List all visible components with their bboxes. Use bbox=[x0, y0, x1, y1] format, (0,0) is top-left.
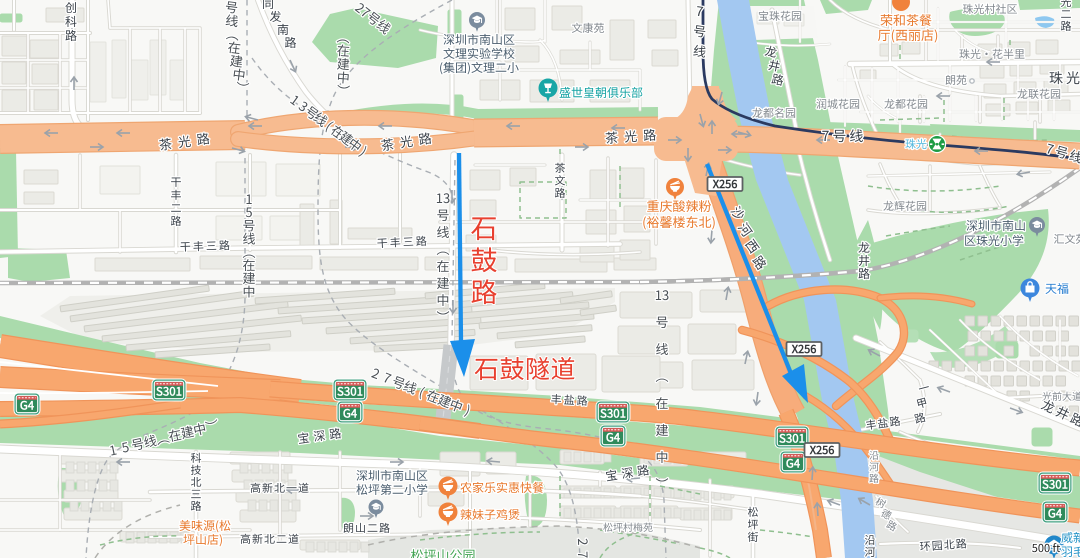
svg-text:河: 河 bbox=[865, 544, 876, 558]
svg-text:线: 线 bbox=[655, 339, 668, 358]
svg-text:环园北路: 环园北路 bbox=[919, 535, 968, 554]
svg-text:路: 路 bbox=[191, 498, 202, 514]
svg-text:G4: G4 bbox=[606, 430, 621, 446]
svg-text:珠光·花半里: 珠光·花半里 bbox=[959, 46, 1025, 62]
svg-text:辣妹子鸡煲: 辣妹子鸡煲 bbox=[460, 506, 520, 523]
svg-text:G4: G4 bbox=[20, 398, 35, 414]
svg-text:高新北二道: 高新北二道 bbox=[240, 531, 300, 547]
svg-text:龙联花园: 龙联花园 bbox=[1017, 86, 1061, 102]
svg-text:区珠光小学: 区珠光小学 bbox=[964, 232, 1024, 249]
svg-text:松坪村梅苑: 松坪村梅苑 bbox=[603, 519, 653, 534]
svg-text:G4: G4 bbox=[1048, 506, 1063, 522]
svg-text:路: 路 bbox=[1061, 18, 1072, 34]
svg-text:︶: ︶ bbox=[436, 307, 449, 326]
svg-text:号: 号 bbox=[692, 20, 708, 41]
svg-text:在: 在 bbox=[655, 393, 668, 412]
svg-text:︶: ︶ bbox=[336, 81, 350, 101]
svg-text:建: 建 bbox=[655, 420, 668, 439]
svg-text:中: 中 bbox=[655, 447, 668, 466]
svg-text:珠光: 珠光 bbox=[1049, 68, 1080, 88]
svg-text:7号线: 7号线 bbox=[822, 126, 867, 146]
svg-text:茶光路: 茶光路 bbox=[605, 124, 663, 147]
svg-text:丰盐路: 丰盐路 bbox=[550, 391, 590, 409]
svg-text:朗山二路: 朗山二路 bbox=[343, 520, 391, 536]
svg-text:路: 路 bbox=[869, 470, 879, 485]
svg-text:G4: G4 bbox=[786, 456, 801, 472]
svg-text:中: 中 bbox=[242, 281, 255, 300]
svg-text:路: 路 bbox=[284, 34, 296, 51]
svg-text:500 ft: 500 ft bbox=[1032, 540, 1061, 556]
svg-text:(集团)文理二小: (集团)文理二小 bbox=[439, 59, 519, 76]
svg-text:羽毛: 羽毛 bbox=[1061, 543, 1080, 558]
svg-text:松坪第二小学: 松坪第二小学 bbox=[356, 481, 428, 498]
svg-text:路: 路 bbox=[858, 265, 870, 282]
svg-text:13: 13 bbox=[655, 285, 669, 304]
svg-text:G4: G4 bbox=[343, 406, 358, 422]
svg-text:︶: ︶ bbox=[235, 77, 250, 97]
svg-text:2: 2 bbox=[574, 538, 593, 546]
svg-text:干丰三路: 干丰三路 bbox=[180, 237, 233, 255]
svg-text:︶: ︶ bbox=[655, 474, 668, 493]
svg-text:S301: S301 bbox=[779, 431, 805, 447]
svg-text:路: 路 bbox=[471, 271, 498, 310]
svg-text:松坪山公园: 松坪山公园 bbox=[410, 545, 475, 558]
svg-text:︵: ︵ bbox=[655, 366, 668, 385]
svg-text:路: 路 bbox=[171, 213, 182, 229]
svg-text:龙都名园: 龙都名园 bbox=[752, 105, 796, 121]
svg-text:X256: X256 bbox=[809, 442, 835, 458]
svg-text:高新北一道: 高新北一道 bbox=[250, 480, 310, 496]
svg-text:X256: X256 bbox=[712, 176, 738, 192]
svg-text:X256: X256 bbox=[791, 341, 817, 357]
svg-text:石鼓隧道: 石鼓隧道 bbox=[474, 350, 576, 386]
svg-text:厅(西丽店): 厅(西丽店) bbox=[878, 25, 939, 44]
svg-text:宝珠花园: 宝珠花园 bbox=[758, 8, 802, 24]
svg-text:干丰三路: 干丰三路 bbox=[376, 233, 429, 252]
svg-text:路: 路 bbox=[555, 185, 566, 201]
svg-text:号: 号 bbox=[655, 312, 668, 331]
svg-text:盛世皇朝俱乐部: 盛世皇朝俱乐部 bbox=[559, 84, 643, 101]
svg-text:坪山店): 坪山店) bbox=[183, 531, 223, 548]
svg-text:龙都花园: 龙都花园 bbox=[884, 96, 928, 112]
svg-text:7: 7 bbox=[574, 551, 593, 558]
svg-text:天福: 天福 bbox=[1045, 280, 1069, 297]
svg-text:珠光: 珠光 bbox=[905, 136, 927, 152]
svg-text:S301: S301 bbox=[600, 406, 626, 422]
svg-text:S301: S301 bbox=[156, 384, 182, 400]
svg-text:街: 街 bbox=[748, 529, 759, 545]
svg-text:文康苑: 文康苑 bbox=[572, 20, 605, 36]
svg-text:农家乐实惠快餐: 农家乐实惠快餐 bbox=[460, 479, 544, 496]
svg-text:龙辉花园: 龙辉花园 bbox=[883, 198, 927, 214]
svg-text:线: 线 bbox=[692, 40, 708, 61]
svg-text:润城花园: 润城花园 bbox=[816, 96, 860, 112]
svg-text:S301: S301 bbox=[1042, 477, 1068, 493]
svg-text:朗苑: 朗苑 bbox=[945, 72, 967, 88]
svg-text:(裕馨楼东北): (裕馨楼东北) bbox=[642, 212, 716, 231]
svg-text:路: 路 bbox=[65, 27, 77, 44]
svg-text:汇文苑: 汇文苑 bbox=[1054, 231, 1080, 247]
svg-text:S301: S301 bbox=[337, 384, 363, 400]
svg-text:珠光村社区: 珠光村社区 bbox=[963, 1, 1018, 17]
